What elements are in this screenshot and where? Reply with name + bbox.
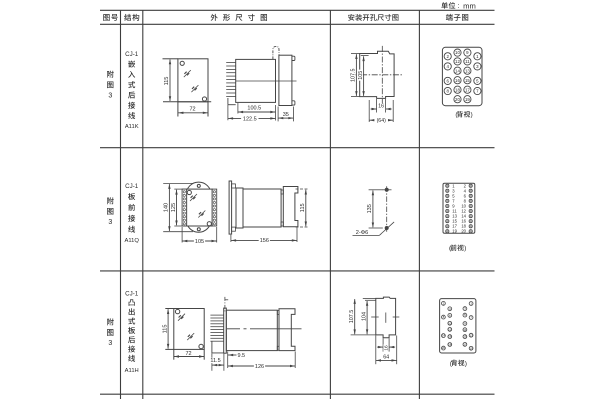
svg-text:CJ-1: CJ-1 <box>125 51 139 58</box>
svg-text:): ) <box>464 245 466 252</box>
svg-text:CJ-1: CJ-1 <box>125 183 139 190</box>
svg-text:16: 16 <box>455 78 460 83</box>
svg-text:11: 11 <box>465 59 470 64</box>
svg-text:A11H: A11H <box>125 368 139 374</box>
svg-text:104: 104 <box>361 312 367 321</box>
svg-text:mm: mm <box>463 1 476 10</box>
svg-text:19: 19 <box>465 97 470 102</box>
svg-text:16: 16 <box>448 335 452 339</box>
svg-text:16: 16 <box>378 103 384 109</box>
svg-text:107.5: 107.5 <box>349 310 355 324</box>
svg-text:72: 72 <box>189 107 195 113</box>
svg-text:107.5: 107.5 <box>351 68 357 82</box>
svg-text:13: 13 <box>469 333 473 337</box>
svg-text:18: 18 <box>448 343 452 347</box>
svg-text:2-Φ6: 2-Φ6 <box>356 230 369 236</box>
svg-text:10: 10 <box>455 50 460 55</box>
svg-text:105: 105 <box>195 239 204 245</box>
svg-text:14: 14 <box>442 334 446 338</box>
svg-text:115: 115 <box>162 325 168 334</box>
svg-text:140: 140 <box>164 203 170 212</box>
svg-text:126: 126 <box>255 364 264 370</box>
svg-text:17: 17 <box>463 343 467 347</box>
svg-text:35: 35 <box>283 112 289 118</box>
svg-text:125: 125 <box>171 203 177 212</box>
svg-text:11: 11 <box>463 328 466 332</box>
svg-text:3: 3 <box>108 219 112 226</box>
svg-text:20: 20 <box>461 229 466 234</box>
svg-text:15: 15 <box>465 78 470 83</box>
svg-text:): ) <box>471 112 473 119</box>
svg-text:(64): (64) <box>377 118 386 124</box>
svg-text:CJ-1: CJ-1 <box>125 291 139 298</box>
svg-text:3: 3 <box>108 340 112 347</box>
svg-text:11.5: 11.5 <box>210 358 220 364</box>
svg-text:14: 14 <box>455 68 460 73</box>
svg-text:115: 115 <box>300 203 306 212</box>
svg-text:19: 19 <box>452 229 457 234</box>
svg-text:A11Q: A11Q <box>124 238 139 244</box>
svg-text:20: 20 <box>442 346 446 350</box>
svg-text::: : <box>457 3 459 10</box>
svg-text:64: 64 <box>383 355 389 361</box>
svg-text:13: 13 <box>465 68 470 73</box>
svg-text:135: 135 <box>367 204 373 213</box>
svg-text:12: 12 <box>455 59 460 64</box>
svg-text:18: 18 <box>455 87 460 92</box>
svg-text:12: 12 <box>448 328 452 332</box>
svg-text:156: 156 <box>260 238 269 244</box>
svg-text:15: 15 <box>463 335 467 339</box>
svg-text:9.5: 9.5 <box>237 353 245 359</box>
svg-text:20: 20 <box>455 97 460 102</box>
svg-text:): ) <box>465 360 467 367</box>
svg-text:100.5: 100.5 <box>247 106 261 112</box>
svg-text:105: 105 <box>358 71 364 80</box>
svg-text:122.5: 122.5 <box>243 116 257 122</box>
svg-text:3: 3 <box>108 93 112 100</box>
svg-text:72: 72 <box>185 351 191 357</box>
svg-text:A11K: A11K <box>125 124 139 130</box>
svg-text:10: 10 <box>448 321 452 325</box>
svg-text:16: 16 <box>383 345 389 351</box>
svg-text:115: 115 <box>164 77 170 86</box>
svg-text:19: 19 <box>469 346 473 350</box>
svg-text:17: 17 <box>465 87 470 92</box>
